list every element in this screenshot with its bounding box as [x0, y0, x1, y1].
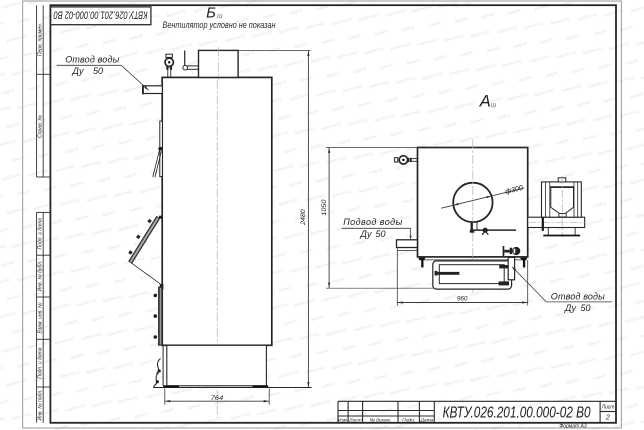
svg-text:(1): (1) [217, 14, 223, 19]
svg-text:Инв. № дубл.: Инв. № дубл. [37, 261, 43, 292]
svg-text:Ду: Ду [360, 229, 372, 239]
svg-text:Формат А3: Формат А3 [559, 424, 587, 430]
svg-text:764: 764 [211, 395, 224, 402]
svg-text:1050: 1050 [321, 199, 328, 216]
svg-text:Взам. инв. №: Взам. инв. № [37, 302, 43, 334]
svg-text:Справ. №: Справ. № [37, 115, 43, 138]
svg-text:Перв. примен.: Перв. примен. [37, 23, 43, 56]
svg-text:КВТУ.026.201.00.000-02 В0: КВТУ.026.201.00.000-02 В0 [53, 8, 148, 20]
svg-text:Ду: Ду [564, 303, 576, 313]
svg-text:Подвод воды: Подвод воды [343, 217, 402, 227]
svg-text:960: 960 [457, 296, 468, 303]
svg-text:КВТУ.026.201.00.000-02 В0: КВТУ.026.201.00.000-02 В0 [443, 405, 591, 422]
svg-text:50: 50 [93, 66, 103, 76]
svg-text:2480: 2480 [300, 209, 307, 226]
svg-text:Инв. № подл.: Инв. № подл. [37, 389, 43, 420]
svg-text:50: 50 [581, 303, 591, 313]
svg-text:50: 50 [376, 229, 386, 239]
svg-text:Отвод воды: Отвод воды [65, 55, 119, 65]
svg-text:Ду: Ду [72, 66, 84, 76]
svg-text:Лист: Лист [348, 417, 362, 423]
svg-text:Лист: Лист [601, 405, 615, 411]
svg-text:Отвод воды: Отвод воды [551, 291, 605, 301]
svg-text:Подп. и дата: Подп. и дата [37, 347, 43, 379]
svg-text:(1): (1) [491, 103, 497, 108]
svg-text:Вентилятор условно не показан: Вентилятор условно не показан [163, 20, 276, 30]
svg-text:2: 2 [605, 415, 610, 422]
svg-text:Подп.: Подп. [402, 417, 415, 423]
svg-text:А: А [479, 93, 491, 111]
svg-text:Изм.: Изм. [338, 417, 348, 423]
svg-text:Дата: Дата [419, 417, 433, 423]
svg-text:Подп. и дата: Подп. и дата [37, 218, 43, 250]
svg-text:№ докум.: № докум. [370, 417, 392, 423]
